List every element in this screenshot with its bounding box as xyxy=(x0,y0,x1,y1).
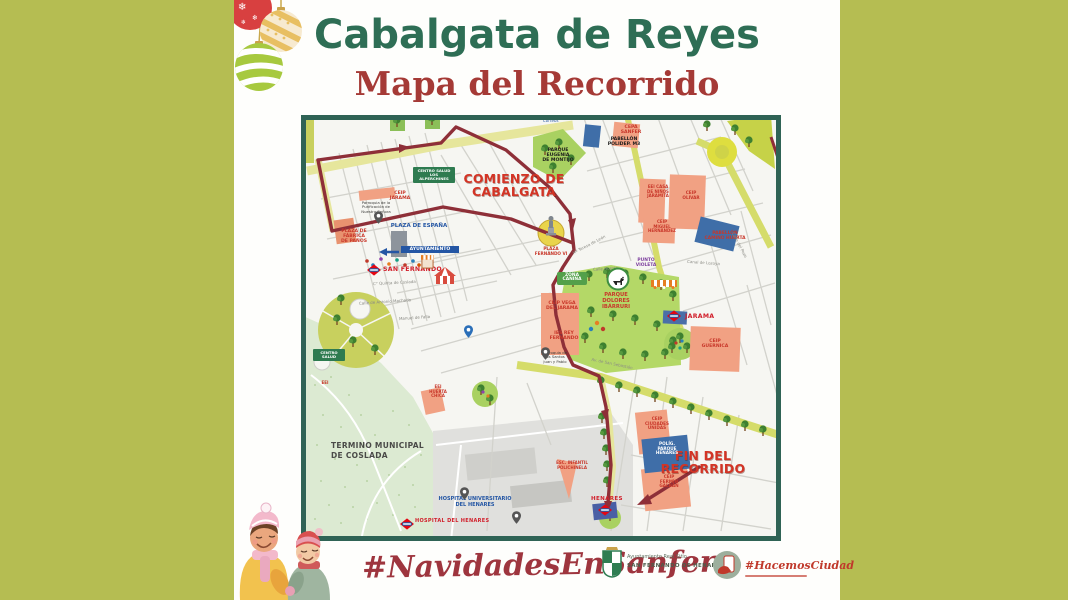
label-hospital-universitario: HOSPITAL UNIVERSITARIO DEL HENARES xyxy=(417,497,533,508)
label-comienzo: COMIENZO DE CABALGATA xyxy=(449,172,579,198)
pin-icon xyxy=(541,347,550,360)
label-correos: Correos xyxy=(543,119,569,124)
label-centro-salud: CENTRO SALUD LOS ALPERCHINES xyxy=(413,167,455,183)
label-pabellon-camino: PABELLÓN CAMINO HUERTA xyxy=(699,232,751,242)
right-olive-band xyxy=(840,0,1068,600)
metro-icon xyxy=(367,264,381,276)
children-illustration xyxy=(226,498,351,600)
label-eei-jaramita: EEI CASA DE NIÑOS JARAMITA xyxy=(642,185,674,199)
street-san-sebastian: Av. de San Sebastián xyxy=(591,358,633,371)
statue-icon xyxy=(544,214,558,236)
christmas-ornaments-icon: ❄ ❄ ❄ xyxy=(234,0,318,120)
street-antonio-machado: Calle de Antonio Machado xyxy=(359,298,411,306)
metro-icon xyxy=(598,504,612,516)
hand-phone-icon xyxy=(712,550,742,580)
label-poligono-henares: POLÍG. PARQUE HENARES xyxy=(649,442,685,456)
svg-text:❄: ❄ xyxy=(252,14,258,22)
label-ayuntamiento: AYUNTAMIENTO xyxy=(401,246,459,253)
street-quinta-coslada: C° Quinta de Coslada xyxy=(373,280,416,287)
street-manuel-falla: Manuel de Falla xyxy=(399,315,430,322)
map-labels-layer: COMIENZO DE CABALGATAFIN DEL RECORRIDOPL… xyxy=(301,115,781,541)
label-ceip-ciudades: CEIP CIUDADES UNIDAS xyxy=(640,417,674,431)
metro-icon xyxy=(400,518,414,530)
pin-icon xyxy=(374,211,383,224)
label-henares: HENARES xyxy=(591,496,623,502)
council-shield-icon xyxy=(601,546,623,578)
council-logo: Ayuntamiento Real Sitio SAN FERNANDO DE … xyxy=(601,546,724,578)
page-title: Cabalgata de Reyes xyxy=(234,12,840,58)
page: { "header": { "title": "Cabalgata de Rey… xyxy=(0,0,1068,600)
pin-icon xyxy=(512,511,521,524)
route-map: COMIENZO DE CABALGATAFIN DEL RECORRIDOPL… xyxy=(301,115,781,541)
label-jarama: JARAMA xyxy=(685,313,714,320)
label-ceip-miguel: CEIP MIGUEL HERNÁNDEZ xyxy=(645,220,679,234)
label-termino: TERMINO MUNICIPAL DE COSLADA xyxy=(331,441,461,461)
label-ceip-guernica: CEIP GUERNICA xyxy=(695,339,735,349)
label-ceip-galban: CEIP FERMÍN GALBÁN xyxy=(653,475,685,489)
label-ceip-olivar: CEIP OLIVAR xyxy=(677,191,705,200)
hacemos-ciudad-logo: #HacemosCiudad xyxy=(712,550,854,580)
label-centro-salud-2: CENTRO SALUD xyxy=(313,349,345,361)
label-cepa-sanfer: CEPA SANFER xyxy=(617,125,645,135)
label-hospital-henares: HOSPITAL DEL HENARES xyxy=(415,519,489,525)
label-parque-dolores: PARQUE DOLORES IBÁRRURI xyxy=(593,293,639,311)
label-punto-violeta: PUNTO VIOLETA xyxy=(631,259,661,269)
label-plaza-fabrica: PLAZA DE FÁBRICA DE PAÑOS xyxy=(335,229,373,245)
pin-blue-icon xyxy=(464,325,473,338)
label-parque-eugenia: PARQUE EUGENIA DE MONTIJO xyxy=(535,148,581,164)
council-line2: SAN FERNANDO DE HENARES xyxy=(627,562,724,570)
label-eei-west: EEI xyxy=(315,381,335,386)
street-teresa-leon: Mª Teresa de León xyxy=(572,235,606,256)
hacemos-tagline-rule xyxy=(745,575,807,577)
label-eei-huerta-chica: EEI HUERTA CHICA xyxy=(425,385,451,399)
poster: ❄ ❄ ❄ Cabalgata de Reyes Mapa del Recorr… xyxy=(234,0,840,600)
awning-icon xyxy=(651,280,677,290)
council-line1: Ayuntamiento Real Sitio xyxy=(627,554,724,562)
pin-icon xyxy=(460,487,469,500)
dog-badge-icon xyxy=(606,267,630,291)
svg-text:❄: ❄ xyxy=(238,2,246,13)
hacemos-label: #HacemosCiudad xyxy=(745,559,854,572)
label-zona-canina: ZONA CANINA xyxy=(557,272,587,285)
label-ceip-vega: CEIP VEGA DEL JARAMA xyxy=(542,301,582,311)
label-plaza-fernando: PLAZA FERNANDO VI xyxy=(529,247,573,256)
metro-icon xyxy=(667,310,681,322)
label-esc-polichinela: ESC. INFANTIL POLICHINELA xyxy=(549,461,595,470)
street-canal-lozoya: Canal de Lozoya xyxy=(687,260,720,267)
label-pabellon-m3: PABELLÓN POLIDEP. M3 xyxy=(601,137,647,147)
left-olive-band xyxy=(0,0,234,600)
label-plaza-espana: PLAZA DE ESPAÑA xyxy=(383,223,455,229)
page-subtitle: Mapa del Recorrido xyxy=(234,64,840,103)
market-icon xyxy=(421,255,434,270)
label-ies-rey: IES REY FERNANDO xyxy=(545,331,583,341)
carousel-icon xyxy=(434,267,456,285)
svg-text:❄: ❄ xyxy=(241,19,246,26)
